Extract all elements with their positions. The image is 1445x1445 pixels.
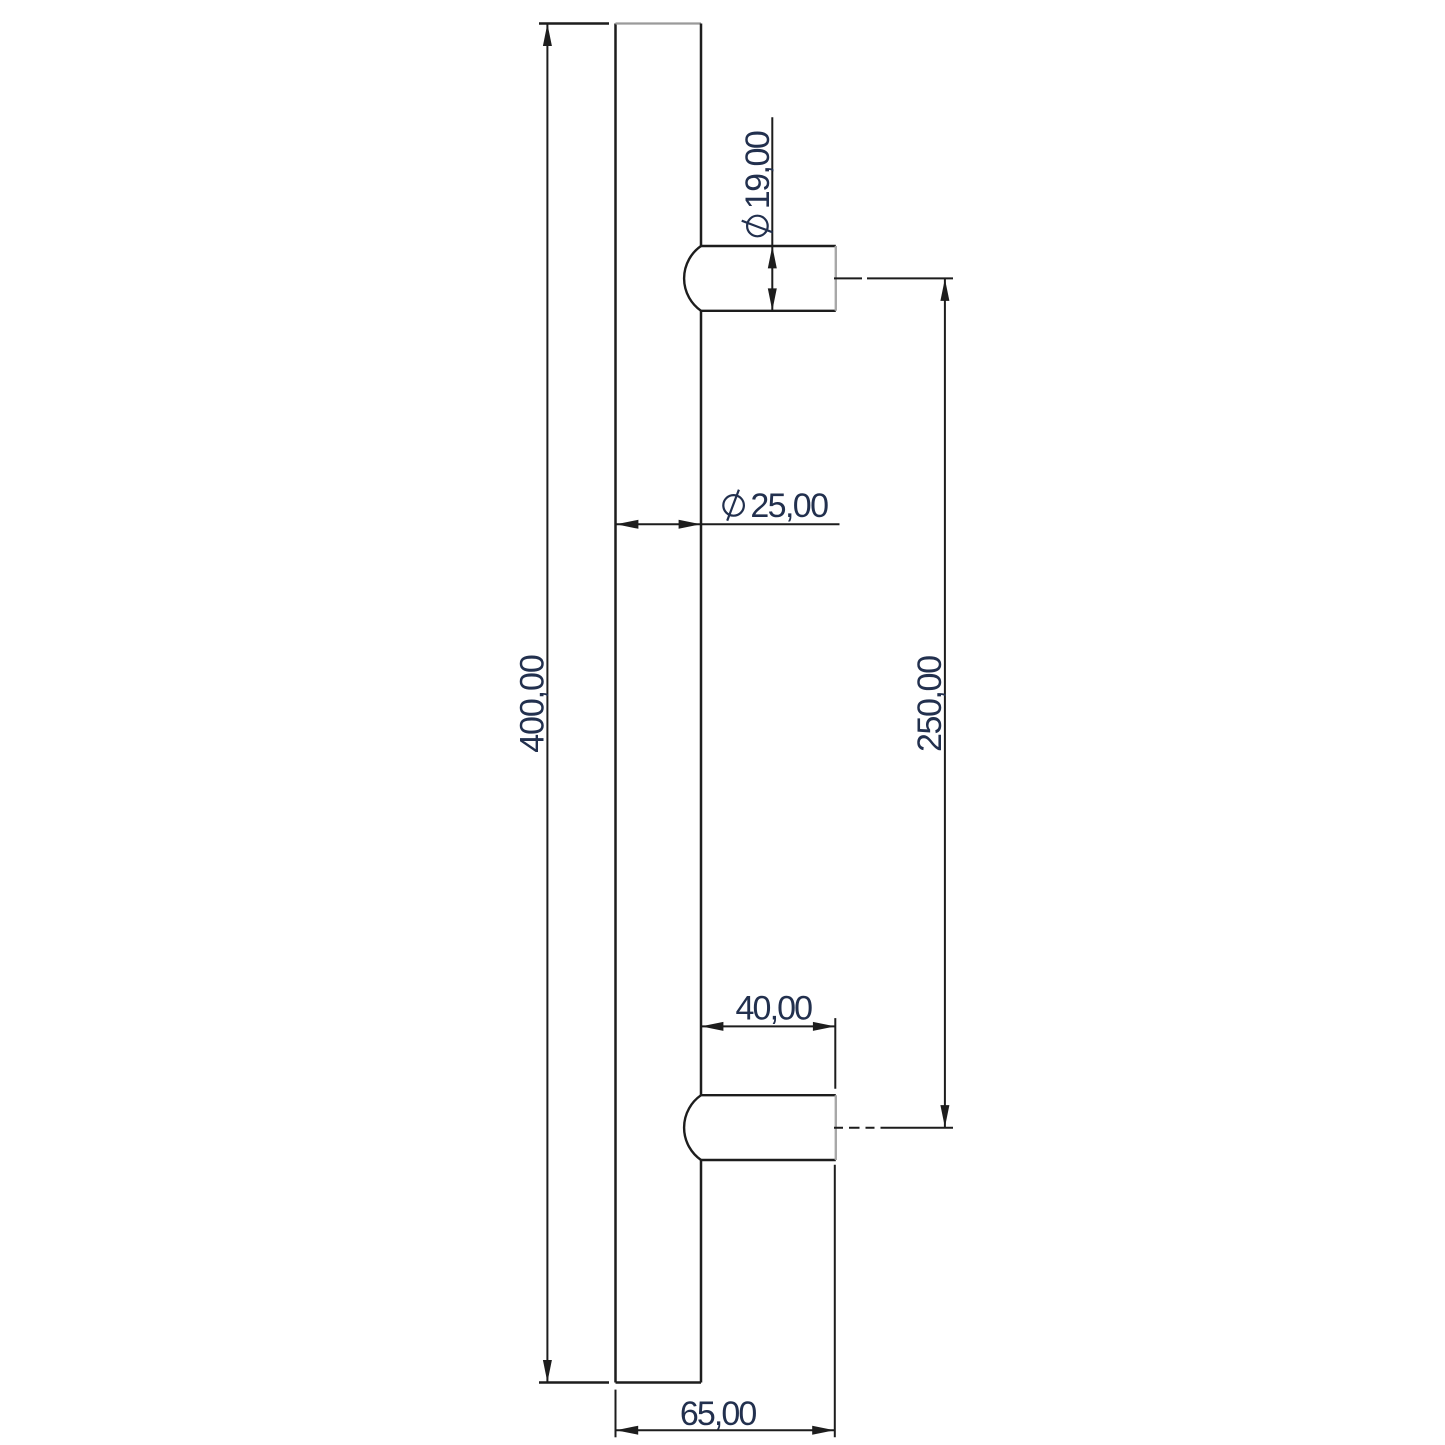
svg-text:19,00: 19,00 bbox=[739, 130, 777, 209]
svg-text:400,00: 400,00 bbox=[514, 654, 552, 753]
svg-text:250,00: 250,00 bbox=[911, 655, 949, 752]
svg-text:40,00: 40,00 bbox=[736, 990, 814, 1028]
svg-text:25,00: 25,00 bbox=[750, 487, 829, 525]
svg-text:65,00: 65,00 bbox=[680, 1395, 758, 1433]
